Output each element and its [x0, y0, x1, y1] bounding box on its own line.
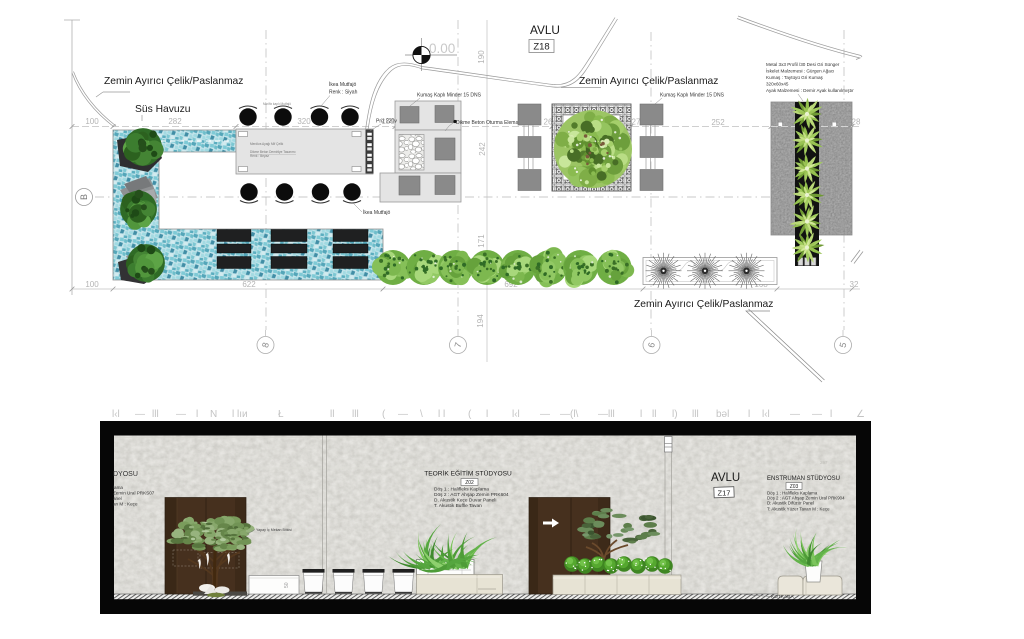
svg-text:Zemin Ayırıcı Çelik/Paslanmaz: Zemin Ayırıcı Çelik/Paslanmaz [634, 299, 773, 310]
svg-text:N: N [210, 409, 217, 420]
svg-text:Kumaş Kaplı Minder 15 DNS: Kumaş Kaplı Minder 15 DNS [417, 93, 482, 99]
svg-text:100: 100 [85, 117, 99, 126]
svg-text:l lıи: l lıи [232, 409, 248, 420]
svg-text:—: — [540, 409, 550, 420]
svg-text:282: 282 [168, 117, 182, 126]
svg-text:ENSTRUMAN STÜDYOSU: ENSTRUMAN STÜDYOSU [767, 475, 840, 482]
svg-text:Z17: Z17 [718, 489, 731, 498]
svg-text:lll: lll [692, 409, 699, 420]
svg-text:lll: lll [352, 409, 359, 420]
svg-text:Merdiva Ayağı Mif Çelik: Merdiva Ayağı Mif Çelik [250, 142, 284, 146]
svg-text:190: 190 [477, 50, 486, 64]
svg-text:32: 32 [850, 280, 859, 289]
svg-text:171: 171 [477, 234, 486, 248]
svg-text:Döş 1 : Halifleks Kaplama: Döş 1 : Halifleks Kaplama [434, 487, 489, 493]
svg-text:İskelet Malzemesi : Gürgen Ağa: İskelet Malzemesi : Gürgen Ağacı [766, 68, 834, 74]
svg-text:28: 28 [852, 118, 861, 127]
svg-text:l l: l l [438, 409, 445, 420]
svg-text:27: 27 [632, 118, 641, 127]
svg-text:bəl: bəl [716, 409, 729, 420]
svg-text:—: — [176, 409, 186, 420]
svg-text:T. Akustik Buffle Tavan: T. Akustik Buffle Tavan [434, 503, 482, 509]
svg-text:ll: ll [652, 409, 656, 420]
svg-text:anel: anel [113, 496, 122, 501]
svg-text:—: — [135, 409, 145, 420]
svg-text:AVLU: AVLU [711, 472, 740, 484]
svg-text:ll: ll [330, 409, 334, 420]
svg-text:0.00: 0.00 [429, 41, 455, 56]
svg-text:320x60x45: 320x60x45 [766, 82, 789, 87]
svg-text:l: l [486, 409, 488, 420]
svg-text:l): l) [672, 409, 678, 420]
svg-text:l: l [196, 409, 198, 420]
svg-text:252: 252 [711, 118, 725, 127]
svg-text:DYOSU: DYOSU [113, 471, 138, 478]
svg-text:l: l [640, 409, 642, 420]
svg-text:Zemin Ayırıcı Çelik/Paslanmaz: Zemin Ayırıcı Çelik/Paslanmaz [579, 76, 718, 87]
svg-text:Dikme Beton Oturma Elemanı: Dikme Beton Oturma Elemanı [456, 120, 522, 126]
svg-text:lama: lama [113, 485, 123, 490]
svg-text:∠: ∠ [856, 409, 865, 420]
svg-text:Priz 220v: Priz 220v [376, 119, 397, 125]
svg-text:Metal 3x3 Profil /30 Desi Gri: Metal 3x3 Profil /30 Desi Gri Sünger [766, 62, 840, 67]
svg-text:D. Akustik Keçe Duvar Paneli: D. Akustik Keçe Duvar Paneli [434, 498, 496, 504]
svg-text:İkea Mutfajö: İkea Mutfajö [329, 81, 356, 88]
svg-text:Zemin Ayırıcı Çelik/Paslanmaz: Zemin Ayırıcı Çelik/Paslanmaz [104, 76, 243, 87]
svg-text:—: — [790, 409, 800, 420]
svg-text:KOTKABA: KOTKABA [771, 594, 794, 600]
svg-text:lll: lll [152, 409, 159, 420]
svg-text:l‹l: l‹l [762, 409, 770, 420]
svg-text:\: \ [420, 409, 423, 420]
svg-text:Yapay İç Mekan Bitkisi: Yapay İç Mekan Bitkisi [256, 527, 292, 532]
svg-text:—(l\: —(l\ [560, 409, 579, 420]
svg-text:622: 622 [242, 280, 256, 289]
svg-text:Z03: Z03 [790, 484, 799, 490]
svg-text:—lll: —lll [598, 409, 615, 420]
svg-text:İkea Mutfajö: İkea Mutfajö [363, 209, 390, 216]
svg-text:—: — [398, 409, 408, 420]
svg-text:100: 100 [85, 280, 99, 289]
svg-text:T: Akustik Yüzer Tavan M : Keç: T: Akustik Yüzer Tavan M : Keçe [767, 507, 830, 512]
svg-text:l: l [748, 409, 750, 420]
svg-text:Ayak Malzemesi : Demir Ayak ku: Ayak Malzemesi : Demir Ayak kullanılmışt… [766, 88, 854, 93]
svg-text:297: 297 [820, 460, 828, 465]
svg-text:Renk : Siyah: Renk : Siyah [329, 90, 358, 96]
svg-text:l‹l: l‹l [112, 409, 120, 420]
svg-text:320: 320 [297, 117, 311, 126]
svg-text:l: l [830, 409, 832, 420]
svg-text:Zemin Ural PRKS07: Zemin Ural PRKS07 [113, 491, 155, 496]
svg-text:TEORİK EĞİTİM STÜDYOSU: TEORİK EĞİTİM STÜDYOSU [424, 469, 512, 478]
svg-text:Döş 2 : AGT Ahşap Zemin PRK604: Döş 2 : AGT Ahşap Zemin PRK604 [434, 492, 509, 498]
svg-text:D: Akustik Difüzör Panel: D: Akustik Difüzör Panel [767, 501, 814, 506]
svg-text:AVLU: AVLU [530, 23, 560, 37]
svg-text:242: 242 [478, 142, 487, 156]
svg-text:Kumaş : Taytüyü Gri Kumaş: Kumaş : Taytüyü Gri Kumaş [766, 75, 824, 80]
svg-text:B: B [79, 194, 89, 200]
svg-text:an M : Keçe: an M : Keçe [113, 502, 138, 507]
svg-text:Z02: Z02 [465, 480, 474, 486]
svg-text:Süs Havuzu: Süs Havuzu [135, 104, 191, 115]
svg-text:l‹l: l‹l [512, 409, 520, 420]
svg-text:194: 194 [476, 314, 485, 328]
svg-text:Kumaş Kaplı Minder 15 DNS: Kumaş Kaplı Minder 15 DNS [660, 93, 725, 99]
svg-text:Minifix kaplı Mutfajö: Minifix kaplı Mutfajö [263, 102, 291, 106]
svg-text:Ł: Ł [278, 409, 284, 420]
svg-text:—: — [812, 409, 822, 420]
svg-text:50: 50 [284, 582, 290, 588]
svg-text:Z18: Z18 [533, 42, 549, 53]
